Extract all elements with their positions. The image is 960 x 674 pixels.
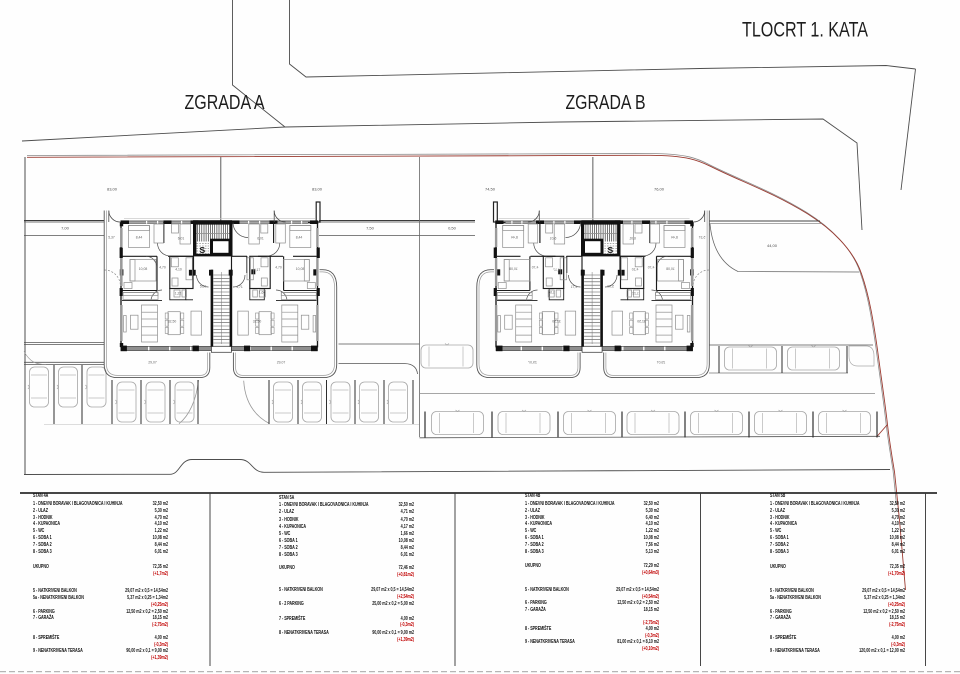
svg-text:ZGRADA B: ZGRADA B	[566, 91, 646, 114]
svg-text:5,00: 5,00	[200, 285, 207, 289]
svg-text:S: S	[200, 245, 206, 255]
svg-text:74,50: 74,50	[485, 187, 496, 192]
svg-text:44,00: 44,00	[767, 243, 778, 248]
svg-text:32,50: 32,50	[253, 320, 262, 324]
svg-text:29,07: 29,07	[277, 361, 286, 365]
svg-text:32,50: 32,50	[168, 320, 177, 324]
svg-text:4,17: 4,17	[254, 268, 261, 272]
svg-text:10,08: 10,08	[296, 267, 305, 271]
svg-text:4,70: 4,70	[159, 266, 166, 270]
svg-text:0,50: 0,50	[448, 226, 457, 231]
svg-text:5,37: 5,37	[108, 236, 115, 240]
svg-text:8,44: 8,44	[296, 236, 303, 240]
svg-text:4,10: 4,10	[175, 268, 182, 272]
svg-text:TLOCRT 1. KATA: TLOCRT 1. KATA	[742, 18, 868, 42]
svg-text:4,71: 4,71	[236, 285, 243, 289]
svg-text:7,00: 7,00	[61, 226, 70, 231]
svg-text:4,70: 4,70	[275, 266, 282, 270]
svg-text:6,01: 6,01	[178, 237, 185, 241]
svg-text:76,00: 76,00	[654, 187, 665, 192]
svg-text:83,00: 83,00	[107, 187, 118, 192]
svg-text:83,00: 83,00	[312, 187, 323, 192]
svg-text:1,66: 1,66	[259, 291, 266, 295]
svg-text:1,22: 1,22	[175, 292, 182, 296]
svg-text:8,44: 8,44	[136, 236, 143, 240]
svg-text:ZGRADA A: ZGRADA A	[185, 91, 265, 114]
svg-text:7,50: 7,50	[366, 226, 375, 231]
svg-text:S: S	[608, 245, 614, 255]
svg-text:10,08: 10,08	[139, 267, 148, 271]
svg-text:6,01: 6,01	[257, 237, 264, 241]
svg-text:29,07: 29,07	[148, 361, 157, 365]
